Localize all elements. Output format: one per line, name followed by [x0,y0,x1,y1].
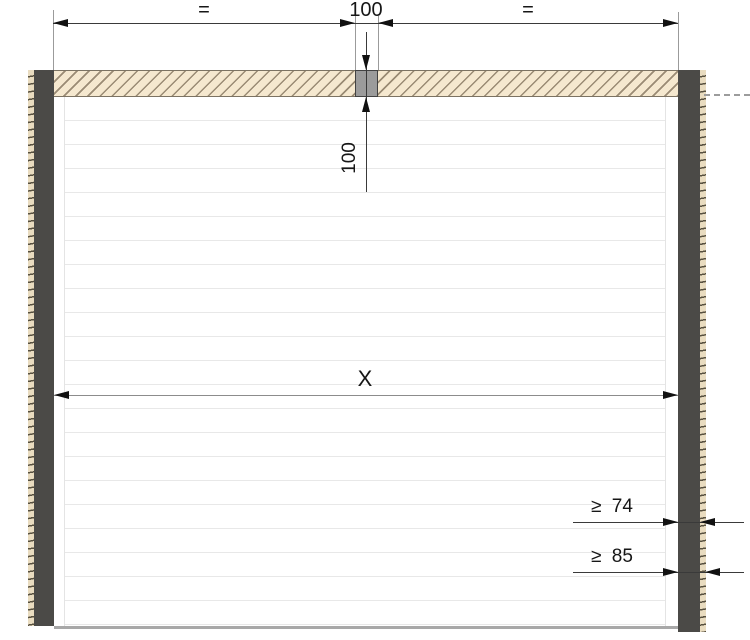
dim-label-min-74: ≥ 74 [557,497,667,517]
clear-width-dim-line [54,395,678,396]
arrowhead-x-right [663,391,678,399]
top-dimension-line [53,23,678,24]
extension-line-right [678,12,679,70]
dim-label-equal-right: = [488,0,568,20]
lintel-level-dashed-line [704,94,750,96]
floor-line [54,626,678,629]
extension-line-anchor-left [355,16,356,70]
arrowhead-anchor-bottom [362,97,370,112]
right-wall-plaster-strip [700,70,706,632]
left-frame-post [34,70,54,626]
arrowhead-85-left [663,568,678,576]
arrowhead-74-left [663,518,678,526]
min74-dim-line [573,522,744,523]
dim-label-lintel-depth: 100 [340,128,360,188]
arrowhead-74-right [700,518,715,526]
arrowhead-anchor-top [362,55,370,70]
arrowhead-85-right [705,568,720,576]
arrowhead-top-right [663,19,678,27]
arrowhead-x-left [54,391,69,399]
dim-label-equal-left: = [164,0,244,20]
dim-label-clear-width: X [335,368,395,390]
technical-drawing-canvas: = 100 = 100 X ≥ 74 ≥ 85 [0,0,750,640]
right-frame-post [678,70,700,632]
arrowhead-top-left [53,19,68,27]
dim-label-min-85: ≥ 85 [557,547,667,567]
dim-label-anchor-width: 100 [326,0,406,20]
